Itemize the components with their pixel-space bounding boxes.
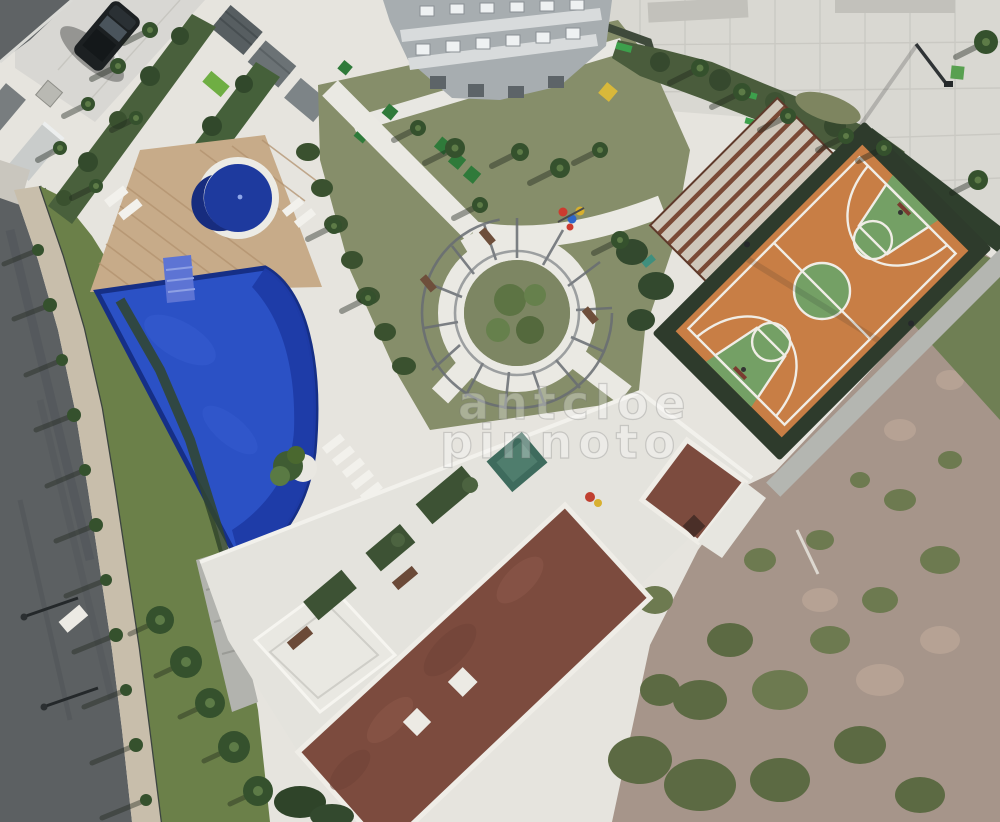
watermark-line2: pinnoto — [440, 415, 681, 469]
aerial-photo: antcloe pinnoto — [0, 0, 1000, 822]
aerial-photo-canvas: antcloe pinnoto — [0, 0, 1000, 822]
paver-accent — [835, 0, 955, 13]
green-paver — [950, 65, 964, 79]
watermark: antcloe pinnoto — [440, 376, 692, 469]
pool-steps — [163, 255, 195, 303]
